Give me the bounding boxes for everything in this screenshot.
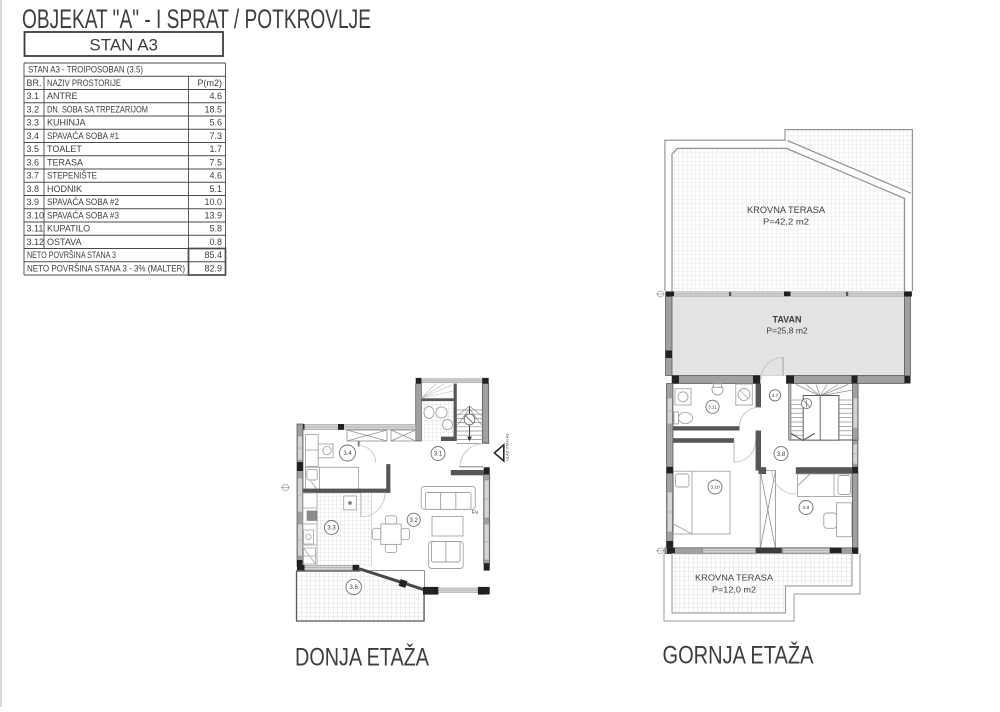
svg-text:DONJA ETAŽA: DONJA ETAŽA: [295, 643, 429, 672]
svg-text:KROVNA TERASA: KROVNA TERASA: [695, 573, 773, 583]
svg-text:NETO POVRŠINA STANA 3: NETO POVRŠINA STANA 3: [27, 250, 116, 260]
svg-text:3.6: 3.6: [27, 157, 40, 167]
svg-text:3.3: 3.3: [27, 118, 40, 128]
svg-text:NAZIV PROSTORIJE: NAZIV PROSTORIJE: [47, 78, 121, 88]
svg-text:P=12,0 m2: P=12,0 m2: [712, 585, 756, 595]
svg-text:3.2: 3.2: [410, 518, 419, 524]
svg-text:SPAVAĆA SOBA #2: SPAVAĆA SOBA #2: [47, 197, 119, 207]
svg-text:GORNJA ETAŽA: GORNJA ETAŽA: [663, 641, 814, 670]
svg-text:3.7: 3.7: [27, 171, 40, 181]
svg-text:3.1: 3.1: [434, 452, 443, 458]
svg-text:4.6: 4.6: [209, 91, 222, 101]
svg-text:10.0: 10.0: [204, 197, 222, 207]
svg-text:3.10: 3.10: [710, 485, 720, 491]
svg-text:3.9: 3.9: [27, 197, 40, 207]
svg-text:KROVNA TERASA: KROVNA TERASA: [747, 205, 825, 215]
svg-text:0.8: 0.8: [209, 237, 222, 247]
svg-text:3.10: 3.10: [27, 210, 45, 220]
svg-text:SPAVAĆA SOBA #1: SPAVAĆA SOBA #1: [47, 131, 119, 141]
svg-text:3.11: 3.11: [27, 224, 44, 234]
svg-text:ANTRE: ANTRE: [47, 91, 78, 101]
svg-text:STEPENIŠTE: STEPENIŠTE: [47, 171, 97, 181]
svg-text:5.1: 5.1: [209, 184, 222, 194]
svg-text:TOALET: TOALET: [47, 144, 82, 154]
svg-text:P(m2): P(m2): [198, 78, 223, 88]
svg-text:3.1: 3.1: [27, 91, 40, 101]
svg-text:Fv: Fv: [472, 510, 478, 516]
svg-text:3.9: 3.9: [803, 505, 810, 511]
svg-text:18.5: 18.5: [204, 104, 222, 114]
svg-text:KUPATILO: KUPATILO: [47, 224, 90, 234]
svg-text:1.7: 1.7: [209, 144, 222, 154]
svg-text:STAN A3 - TROIPOSOBAN (3.5): STAN A3 - TROIPOSOBAN (3.5): [28, 65, 143, 75]
svg-text:3.8: 3.8: [27, 184, 40, 194]
svg-text:7.3: 7.3: [209, 131, 222, 141]
svg-text:3.12: 3.12: [27, 237, 45, 247]
svg-text:TAVAN: TAVAN: [773, 315, 802, 325]
svg-text:P=25,8 m2: P=25,8 m2: [766, 326, 808, 336]
svg-text:HODNIK: HODNIK: [47, 184, 82, 194]
svg-text:3.8: 3.8: [777, 452, 786, 458]
svg-text:3.4: 3.4: [27, 131, 40, 141]
svg-text:3.11: 3.11: [708, 405, 717, 411]
svg-text:OBJEKAT "A" - I SPRAT / POTKRO: OBJEKAT "A" - I SPRAT / POTKROVLJE: [22, 4, 371, 34]
svg-text:TERASA: TERASA: [47, 157, 83, 167]
svg-text:SPAVAĆA SOBA #3: SPAVAĆA SOBA #3: [47, 210, 119, 220]
svg-text:5.8: 5.8: [209, 224, 222, 234]
svg-text:13.9: 13.9: [204, 210, 222, 220]
svg-text:7.5: 7.5: [209, 157, 222, 167]
svg-text:KUHINJA: KUHINJA: [47, 118, 86, 128]
svg-text:3.7: 3.7: [772, 393, 779, 399]
svg-text:NETO POVRŠINA STANA 3 - 3% (MA: NETO POVRŠINA STANA 3 - 3% (MALTER): [27, 263, 185, 273]
svg-text:5.6: 5.6: [209, 118, 222, 128]
svg-text:82.9: 82.9: [204, 263, 222, 273]
svg-text:ULAZ STAN A3: ULAZ STAN A3: [505, 433, 510, 461]
svg-text:4.6: 4.6: [209, 171, 222, 181]
svg-text:STAN A3: STAN A3: [89, 36, 158, 55]
svg-text:3.2: 3.2: [27, 104, 40, 114]
svg-text:3.5: 3.5: [27, 144, 40, 154]
svg-text:P=42,2 m2: P=42,2 m2: [763, 217, 809, 227]
svg-text:3.4: 3.4: [343, 451, 352, 457]
svg-text:85.4: 85.4: [204, 250, 222, 260]
svg-text:OSTAVA: OSTAVA: [47, 237, 82, 247]
svg-text:3.6: 3.6: [350, 585, 359, 591]
svg-text:3.3: 3.3: [327, 526, 336, 532]
svg-text:BR.: BR.: [27, 78, 42, 88]
svg-text:DN. SOBA SA TRPEZARIJOM: DN. SOBA SA TRPEZARIJOM: [47, 104, 148, 114]
